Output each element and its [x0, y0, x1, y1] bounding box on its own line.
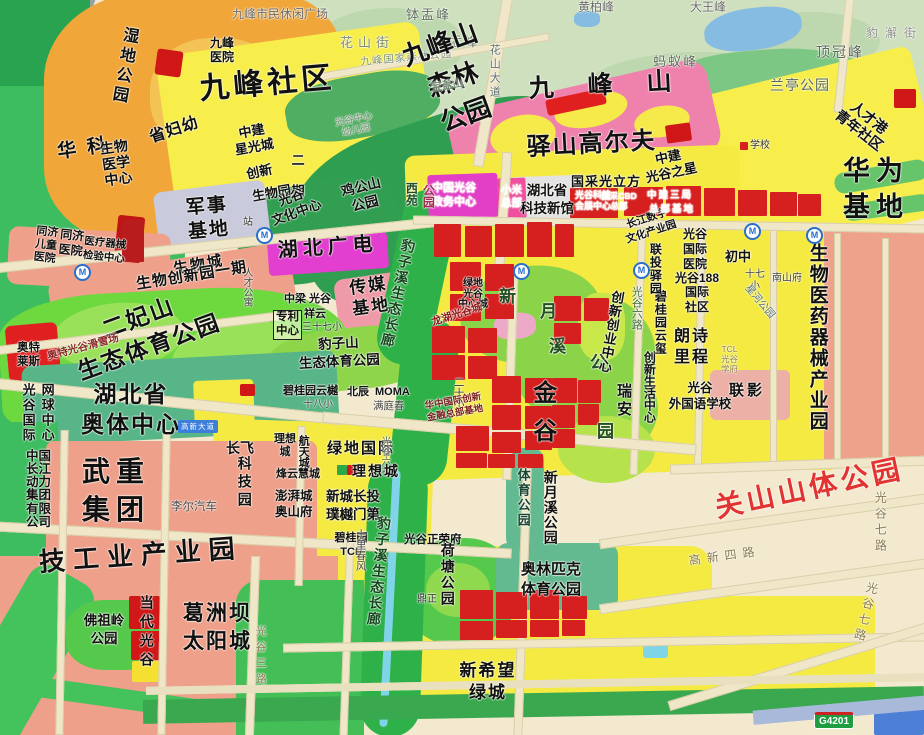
map-zone	[132, 661, 159, 682]
map-building-block	[492, 376, 521, 403]
map-building-block	[770, 192, 797, 216]
map-building-block	[562, 596, 587, 619]
map-zone	[665, 122, 692, 143]
map-building-block	[738, 190, 767, 216]
map-road	[599, 493, 924, 550]
map-building-block	[488, 454, 515, 468]
map-road	[882, 238, 889, 465]
map-building-block	[460, 621, 493, 640]
map-building-block	[552, 378, 577, 403]
map-road	[770, 230, 777, 467]
map-building-block	[465, 226, 492, 257]
map-building-block	[666, 186, 701, 216]
map-building-block	[495, 224, 524, 257]
map-building-block	[337, 465, 347, 475]
metro-station-icon: M	[744, 223, 761, 240]
map-building-block	[485, 264, 514, 291]
map-building-block	[347, 465, 357, 475]
map-building-block	[460, 590, 493, 619]
metro-station-icon: M	[74, 264, 91, 281]
map-building-block	[492, 405, 521, 430]
map-building-block	[740, 142, 748, 150]
metro-station-icon: M	[806, 227, 823, 244]
map-building-block	[578, 380, 601, 403]
map-building-block	[456, 453, 487, 468]
map-building-block	[552, 429, 575, 448]
map-building-block	[525, 378, 552, 403]
map-building-block	[562, 620, 585, 636]
map-building-block	[468, 328, 497, 353]
map-zone	[240, 384, 255, 396]
city-planning-map[interactable]: 九峰市民休闲广场湿地公园钵盂峰钵盂峰花山街九峰国家森林公园黄柏峰大王峰豹澥街蚂蚁…	[0, 0, 924, 735]
map-road	[834, 233, 841, 465]
map-building-block	[554, 296, 581, 321]
map-building-block	[530, 620, 559, 637]
map-building-block	[525, 431, 552, 450]
map-zone	[46, 441, 317, 566]
map-building-block	[530, 590, 559, 619]
map-building-block	[527, 222, 552, 257]
map-building-block	[432, 326, 465, 353]
map-building-block	[434, 224, 461, 257]
map-building-block	[554, 323, 581, 344]
map-building-block	[624, 187, 663, 216]
map-zone	[129, 596, 160, 629]
map-zone	[154, 48, 183, 77]
map-building-block	[578, 404, 599, 425]
map-building-block	[555, 224, 574, 257]
map-building-block	[485, 294, 514, 319]
map-building-block	[492, 432, 521, 453]
map-building-block	[584, 298, 609, 321]
map-building-block	[552, 405, 575, 428]
map-building-block	[432, 355, 465, 380]
map-building-block	[518, 454, 543, 468]
map-zone	[574, 11, 600, 27]
map-zone	[710, 370, 790, 420]
metro-station-icon: M	[513, 263, 530, 280]
map-zone	[894, 89, 916, 108]
highway-shield: G4201	[814, 712, 854, 729]
map-building-block	[456, 426, 489, 451]
map-building-block	[704, 188, 735, 216]
map-label-xinyuexi-park-v: 新月溪公园	[542, 470, 559, 545]
road-name-badge: 高新大道	[178, 420, 218, 433]
map-zone	[131, 631, 160, 660]
map-building-block	[525, 406, 552, 429]
map-building-block	[798, 194, 821, 216]
map-building-block	[496, 620, 527, 638]
map-zone	[427, 173, 498, 219]
metro-station-icon: M	[256, 227, 273, 244]
map-zone	[638, 226, 836, 470]
map-building-block	[496, 592, 527, 619]
map-building-block	[122, 220, 144, 262]
map-building-block	[450, 262, 481, 291]
metro-station-icon: M	[633, 262, 650, 279]
map-building-block	[570, 188, 618, 218]
map-building-block	[450, 294, 481, 321]
